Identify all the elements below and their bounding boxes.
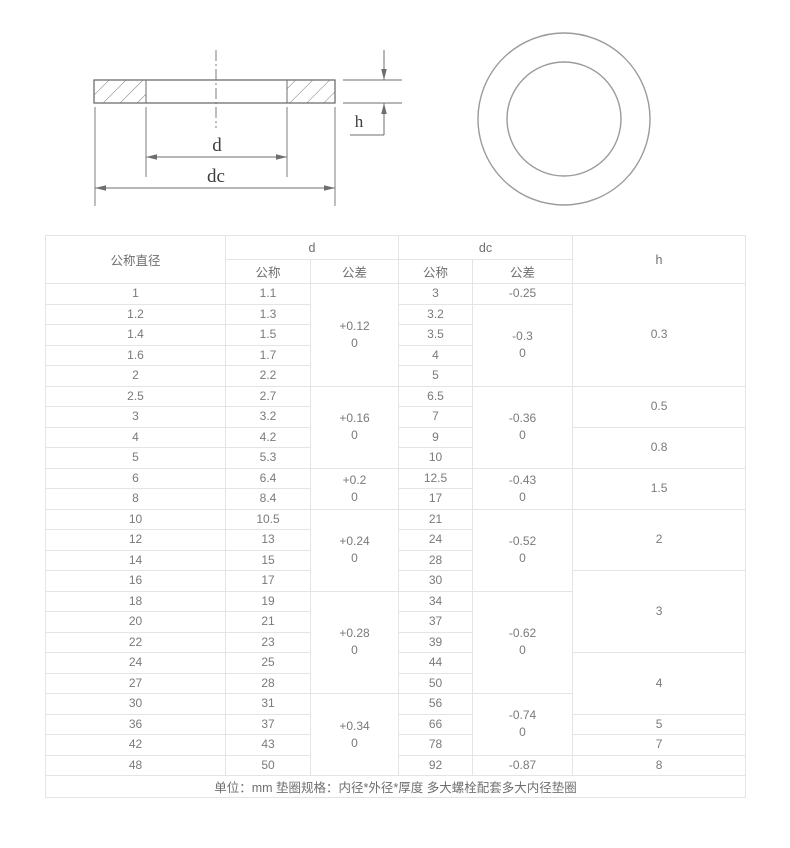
cross-section-drawing: d dc h	[60, 10, 420, 210]
dc-nominal-cell: 3.2	[399, 304, 473, 325]
nominal-diameter-cell: 42	[46, 735, 226, 756]
d-nominal-cell: 25	[226, 653, 311, 674]
h-cell: 0.8	[573, 427, 746, 468]
nominal-diameter-cell: 3	[46, 407, 226, 428]
nominal-diameter-cell: 8	[46, 489, 226, 510]
spec-row: 2.52.7+0.1606.5-0.3600.5	[46, 386, 746, 407]
d-nominal-cell: 10.5	[226, 509, 311, 530]
dc-nominal-cell: 21	[399, 509, 473, 530]
nominal-diameter-cell: 1	[46, 284, 226, 305]
tolerance-lower: 0	[473, 550, 572, 567]
dc-tolerance-cell: -0.30	[473, 304, 573, 386]
tolerance-lower: 0	[311, 489, 398, 506]
tolerance-upper: +0.16	[311, 410, 398, 427]
d-nominal-cell: 21	[226, 612, 311, 633]
d-nominal-cell: 5.3	[226, 448, 311, 469]
d-nominal-cell: 15	[226, 550, 311, 571]
d-nominal-cell: 1.5	[226, 325, 311, 346]
nominal-diameter-cell: 16	[46, 571, 226, 592]
dim-label-dc: dc	[207, 166, 225, 187]
d-nominal-cell: 17	[226, 571, 311, 592]
nominal-diameter-cell: 2.5	[46, 386, 226, 407]
dc-nominal-cell: 28	[399, 550, 473, 571]
dc-tolerance-cell: -0.620	[473, 591, 573, 694]
tolerance-upper: -0.62	[473, 625, 572, 642]
d-nominal-cell: 1.7	[226, 345, 311, 366]
dc-tolerance-cell: -0.25	[473, 284, 573, 305]
dc-nominal-cell: 12.5	[399, 468, 473, 489]
tolerance-lower: 0	[473, 427, 572, 444]
dc-nominal-cell: 4	[399, 345, 473, 366]
tolerance-upper: -0.87	[473, 757, 572, 774]
d-tolerance-cell: +0.240	[311, 509, 399, 591]
nominal-diameter-cell: 20	[46, 612, 226, 633]
dc-nominal-cell: 50	[399, 673, 473, 694]
dc-tolerance-cell: -0.430	[473, 468, 573, 509]
tolerance-lower: 0	[311, 550, 398, 567]
tolerance-lower: 0	[311, 642, 398, 659]
tolerance-upper: -0.3	[473, 328, 572, 345]
h-cell: 8	[573, 755, 746, 776]
dc-tolerance-cell: -0.740	[473, 694, 573, 756]
dc-nominal-cell: 9	[399, 427, 473, 448]
d-nominal-cell: 2.2	[226, 366, 311, 387]
dc-nominal-cell: 56	[399, 694, 473, 715]
d-nominal-cell: 8.4	[226, 489, 311, 510]
dc-nominal-cell: 30	[399, 571, 473, 592]
d-tolerance-cell: +0.120	[311, 284, 399, 387]
dim-label-d: d	[212, 135, 222, 156]
h-cell: 3	[573, 571, 746, 653]
tolerance-upper: +0.34	[311, 718, 398, 735]
d-nominal-cell: 1.3	[226, 304, 311, 325]
spec-table-header: 公称直径 d dc h 公称 公差 公称 公差	[46, 236, 746, 284]
spec-row: 1010.5+0.24021-0.5202	[46, 509, 746, 530]
nominal-diameter-cell: 6	[46, 468, 226, 489]
dc-nominal-cell: 66	[399, 714, 473, 735]
d-nominal-cell: 43	[226, 735, 311, 756]
d-nominal-cell: 23	[226, 632, 311, 653]
nominal-diameter-cell: 1.2	[46, 304, 226, 325]
h-cell: 2	[573, 509, 746, 571]
d-tolerance-cell: +0.280	[311, 591, 399, 694]
nominal-diameter-cell: 4	[46, 427, 226, 448]
dc-tolerance-cell: -0.87	[473, 755, 573, 776]
header-dc-tolerance: 公差	[473, 260, 573, 284]
d-nominal-cell: 19	[226, 591, 311, 612]
d-nominal-cell: 1.1	[226, 284, 311, 305]
h-cell: 0.3	[573, 284, 746, 387]
dim-label-h: h	[355, 112, 364, 131]
tolerance-lower: 0	[311, 335, 398, 352]
header-dc-nominal: 公称	[399, 260, 473, 284]
h-cell: 1.5	[573, 468, 746, 509]
dimension-h	[343, 50, 402, 135]
dc-nominal-cell: 44	[399, 653, 473, 674]
tolerance-lower: 0	[473, 345, 572, 362]
h-cell: 0.5	[573, 386, 746, 427]
header-dc: dc	[399, 236, 573, 260]
spec-row: 11.1+0.1203-0.250.3	[46, 284, 746, 305]
tolerance-upper: +0.2	[311, 472, 398, 489]
d-nominal-cell: 2.7	[226, 386, 311, 407]
dc-nominal-cell: 10	[399, 448, 473, 469]
washer-spec-page: d dc h	[0, 0, 790, 848]
nominal-diameter-cell: 14	[46, 550, 226, 571]
tolerance-upper: -0.74	[473, 707, 572, 724]
dc-nominal-cell: 92	[399, 755, 473, 776]
header-h: h	[573, 236, 746, 284]
d-nominal-cell: 31	[226, 694, 311, 715]
washer-spec-table: 公称直径 d dc h 公称 公差 公称 公差 11.1+0.1203-0.25…	[45, 235, 746, 798]
tolerance-lower: 0	[473, 489, 572, 506]
d-tolerance-cell: +0.340	[311, 694, 399, 776]
nominal-diameter-cell: 1.4	[46, 325, 226, 346]
d-nominal-cell: 13	[226, 530, 311, 551]
dc-nominal-cell: 37	[399, 612, 473, 633]
h-cell: 5	[573, 714, 746, 735]
h-cell: 7	[573, 735, 746, 756]
tolerance-upper: -0.52	[473, 533, 572, 550]
nominal-diameter-cell: 24	[46, 653, 226, 674]
header-nominal-diameter: 公称直径	[46, 236, 226, 284]
nominal-diameter-cell: 18	[46, 591, 226, 612]
nominal-diameter-cell: 12	[46, 530, 226, 551]
d-nominal-cell: 6.4	[226, 468, 311, 489]
dc-nominal-cell: 24	[399, 530, 473, 551]
dc-nominal-cell: 39	[399, 632, 473, 653]
nominal-diameter-cell: 27	[46, 673, 226, 694]
tolerance-lower: 0	[311, 735, 398, 752]
nominal-diameter-cell: 22	[46, 632, 226, 653]
header-d: d	[226, 236, 399, 260]
d-tolerance-cell: +0.20	[311, 468, 399, 509]
d-nominal-cell: 28	[226, 673, 311, 694]
front-view-drawing	[460, 10, 680, 230]
tolerance-lower: 0	[311, 427, 398, 444]
h-cell: 4	[573, 653, 746, 715]
inner-circle	[507, 62, 621, 176]
nominal-diameter-cell: 2	[46, 366, 226, 387]
tolerance-upper: -0.36	[473, 410, 572, 427]
dc-nominal-cell: 3.5	[399, 325, 473, 346]
spec-table-container: 公称直径 d dc h 公称 公差 公称 公差 11.1+0.1203-0.25…	[45, 235, 745, 798]
dc-nominal-cell: 78	[399, 735, 473, 756]
tolerance-upper: -0.25	[473, 285, 572, 302]
nominal-diameter-cell: 30	[46, 694, 226, 715]
unit-note: 单位：mm 垫圈规格：内径*外径*厚度 多大螺栓配套多大内径垫圈	[46, 776, 746, 798]
tolerance-upper: +0.28	[311, 625, 398, 642]
dc-nominal-cell: 7	[399, 407, 473, 428]
outer-circle	[478, 33, 650, 205]
spec-row: 66.4+0.2012.5-0.4301.5	[46, 468, 746, 489]
nominal-diameter-cell: 5	[46, 448, 226, 469]
d-nominal-cell: 37	[226, 714, 311, 735]
dc-nominal-cell: 6.5	[399, 386, 473, 407]
d-nominal-cell: 3.2	[226, 407, 311, 428]
spec-table-body: 11.1+0.1203-0.250.31.21.33.2-0.301.41.53…	[46, 284, 746, 776]
dc-nominal-cell: 5	[399, 366, 473, 387]
tolerance-upper: -0.43	[473, 472, 572, 489]
washer-section-body	[94, 80, 335, 103]
nominal-diameter-cell: 48	[46, 755, 226, 776]
header-d-tolerance: 公差	[311, 260, 399, 284]
dc-tolerance-cell: -0.520	[473, 509, 573, 591]
tolerance-upper: +0.12	[311, 318, 398, 335]
d-nominal-cell: 4.2	[226, 427, 311, 448]
dc-nominal-cell: 17	[399, 489, 473, 510]
nominal-diameter-cell: 1.6	[46, 345, 226, 366]
nominal-diameter-cell: 36	[46, 714, 226, 735]
tolerance-upper: +0.24	[311, 533, 398, 550]
spec-table-footer: 单位：mm 垫圈规格：内径*外径*厚度 多大螺栓配套多大内径垫圈	[46, 776, 746, 798]
dc-nominal-cell: 34	[399, 591, 473, 612]
d-tolerance-cell: +0.160	[311, 386, 399, 468]
nominal-diameter-cell: 10	[46, 509, 226, 530]
dc-nominal-cell: 3	[399, 284, 473, 305]
header-d-nominal: 公称	[226, 260, 311, 284]
dc-tolerance-cell: -0.360	[473, 386, 573, 468]
tolerance-lower: 0	[473, 724, 572, 741]
d-nominal-cell: 50	[226, 755, 311, 776]
tolerance-lower: 0	[473, 642, 572, 659]
